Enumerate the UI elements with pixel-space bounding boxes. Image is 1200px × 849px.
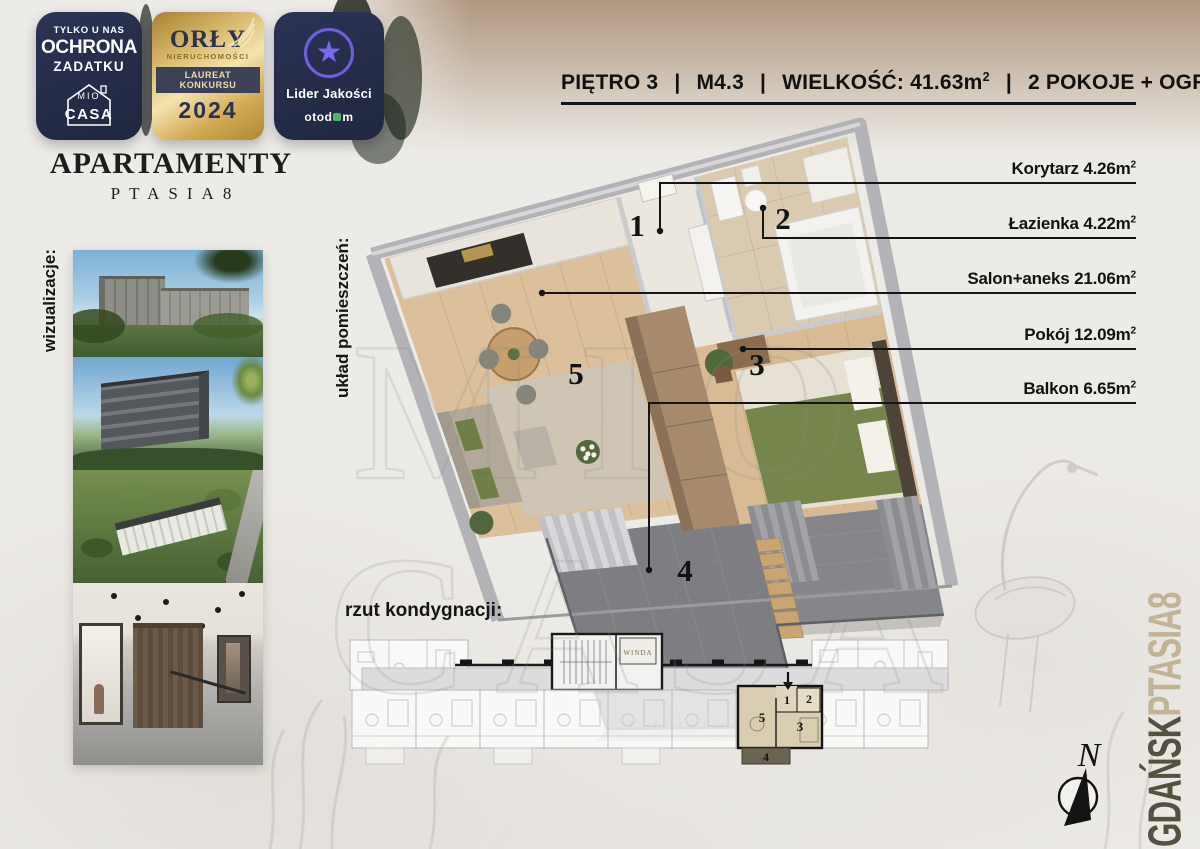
visualizations-label: wizualizacje:	[40, 249, 60, 352]
compass-north-label: N	[1077, 737, 1103, 774]
corridor-door	[217, 635, 251, 703]
orly-award-badge: ORŁY NIERUCHOMOŚCI LAUREAT KONKURSU 2024	[152, 12, 264, 140]
bush	[73, 448, 263, 470]
mio-casa-house-logo: MIO CASA	[58, 79, 120, 127]
star-icon: ★	[316, 38, 343, 68]
visualization-photos	[73, 250, 263, 765]
brand-project: PTASIA8	[28, 184, 314, 204]
elevator-label: WINDA	[623, 649, 652, 657]
otodom-logo-end: m	[342, 110, 353, 124]
flyer-page: MIO CASA	[0, 0, 1200, 849]
otodom-logo-start: otod	[304, 110, 332, 124]
header-separator: |	[760, 71, 766, 94]
quality-leader-label: Lider Jakości	[286, 86, 372, 101]
room-label-text: Salon+aneks 21.06m	[967, 269, 1130, 288]
badge-line: OCHRONA	[41, 37, 137, 59]
ceiling-lights	[111, 593, 117, 599]
deposit-protection-badge: TYLKO U NAS OCHRONA ZADATKU MIO CASA	[36, 12, 142, 140]
room-number-2: 2	[775, 201, 791, 236]
award-badges-row: TYLKO U NAS OCHRONA ZADATKU MIO CASA ORŁ…	[36, 12, 384, 140]
orly-award-band: LAUREAT KONKURSU	[156, 67, 259, 93]
unit-header-bar: PIĘTRO 3 | M4.3 | WIELKOŚĆ: 41.63m2 | 2 …	[561, 70, 1136, 105]
photo-aerial-view	[73, 470, 263, 583]
room-label-balkon: Balkon 6.65m2	[1023, 379, 1136, 399]
brand-block: APARTAMENTY PTASIA8	[28, 147, 314, 204]
floor-plan-label: rzut kondygnacji:	[345, 600, 502, 622]
location-city: GDAŃSK	[1140, 716, 1191, 847]
building-block	[101, 370, 209, 451]
orly-category: NIERUCHOMOŚCI	[167, 52, 250, 61]
room-label-lazienka: Łazienka 4.22m2	[1009, 214, 1136, 234]
room-label-pokoj: Pokój 12.09m2	[1024, 325, 1136, 345]
brand-title: APARTAMENTY	[28, 147, 314, 181]
room-label-text: Korytarz 4.26m	[1011, 159, 1130, 178]
badge-line: TYLKO U NAS	[54, 25, 125, 36]
header-separator: |	[1006, 71, 1012, 94]
header-unit: M4.3	[696, 71, 744, 94]
room-label-korytarz: Korytarz 4.26m2	[1011, 159, 1136, 179]
location-vertical-text: GDAŃSKPTASIA8	[1140, 592, 1192, 847]
photo-building-exterior-1	[73, 250, 263, 357]
room-label-sup: 2	[1131, 214, 1136, 225]
room-number-3: 3	[749, 347, 765, 382]
strip-number-1: 1	[784, 693, 790, 707]
room-number-5: 5	[568, 356, 584, 391]
room-label-sup: 2	[1131, 269, 1136, 280]
strip-number-3: 3	[797, 719, 804, 734]
tree-canopy	[189, 250, 263, 286]
wing-icon	[224, 16, 258, 50]
room-label-sup: 2	[1131, 159, 1136, 170]
badge-line: ZADATKU	[53, 59, 124, 74]
corridor-view	[226, 643, 240, 693]
leader-balkon	[649, 403, 1136, 570]
otodom-logo: otodm	[304, 110, 353, 124]
bush	[193, 313, 263, 339]
room-number-4: 4	[677, 553, 693, 588]
strip-number-2: 2	[806, 692, 812, 706]
header-rooms: 2 POKOJE + OGRÓD	[1028, 71, 1200, 94]
strip-number-5: 5	[759, 710, 766, 725]
room-layout-label: układ pomieszczeń:	[333, 237, 353, 398]
photo-interior-lobby	[73, 583, 263, 765]
room-label-text: Pokój 12.09m	[1024, 325, 1130, 344]
logo-mio-text: MIO	[78, 91, 101, 101]
highlighted-unit: 5 1 2 3 4	[738, 672, 822, 764]
header-floor: PIĘTRO 3	[561, 71, 658, 94]
entrance-glass-door	[79, 623, 123, 725]
location-project: PTASIA8	[1140, 592, 1191, 716]
header-separator: |	[674, 71, 680, 94]
room-label-sup: 2	[1131, 325, 1136, 336]
otodom-green-square-icon	[333, 113, 341, 121]
room-numbers-3d: 1 2 3 4 5	[568, 201, 791, 588]
header-size: WIELKOŚĆ: 41.63m	[782, 71, 982, 94]
room-label-text: Balkon 6.65m	[1023, 379, 1130, 398]
strip-number-4: 4	[763, 750, 769, 764]
room-label-salon: Salon+aneks 21.06m2	[967, 269, 1136, 289]
star-circle: ★	[304, 28, 354, 78]
logo-casa-text: CASA	[65, 106, 114, 123]
person-silhouette	[94, 684, 104, 714]
room-label-sup: 2	[1131, 379, 1136, 390]
willow-tree	[201, 357, 263, 463]
orly-year: 2024	[178, 97, 237, 124]
header-size-sup: 2	[983, 70, 990, 84]
room-number-1: 1	[629, 208, 645, 243]
compass: N	[1059, 737, 1103, 826]
otodom-quality-badge: ★ Lider Jakości otodm	[274, 12, 384, 140]
room-label-text: Łazienka 4.22m	[1009, 214, 1131, 233]
photo-building-exterior-2	[73, 357, 263, 470]
